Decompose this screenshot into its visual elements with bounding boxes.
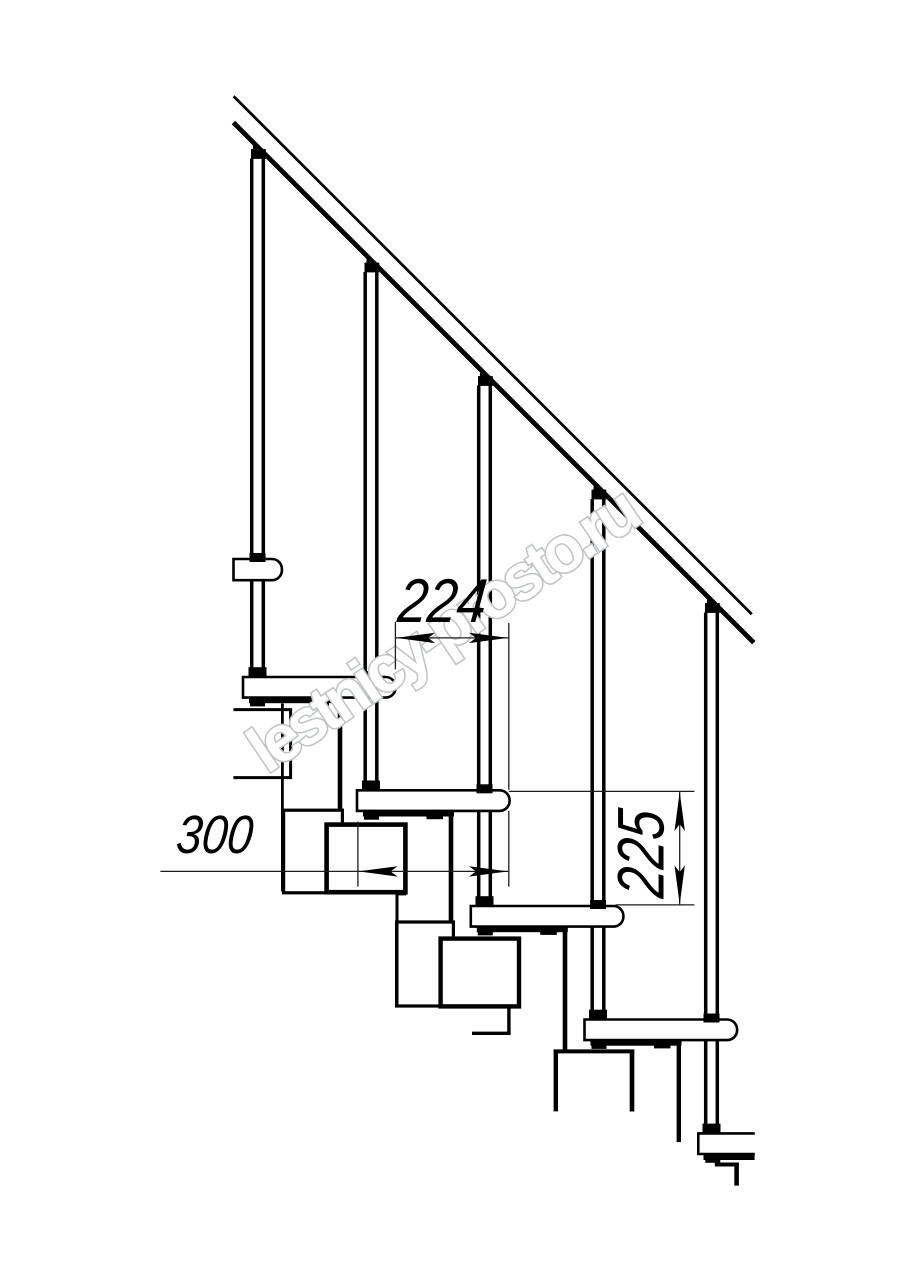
svg-text:224: 224 [394, 567, 490, 636]
svg-text:300: 300 [174, 805, 256, 865]
svg-text:225: 225 [605, 806, 679, 902]
